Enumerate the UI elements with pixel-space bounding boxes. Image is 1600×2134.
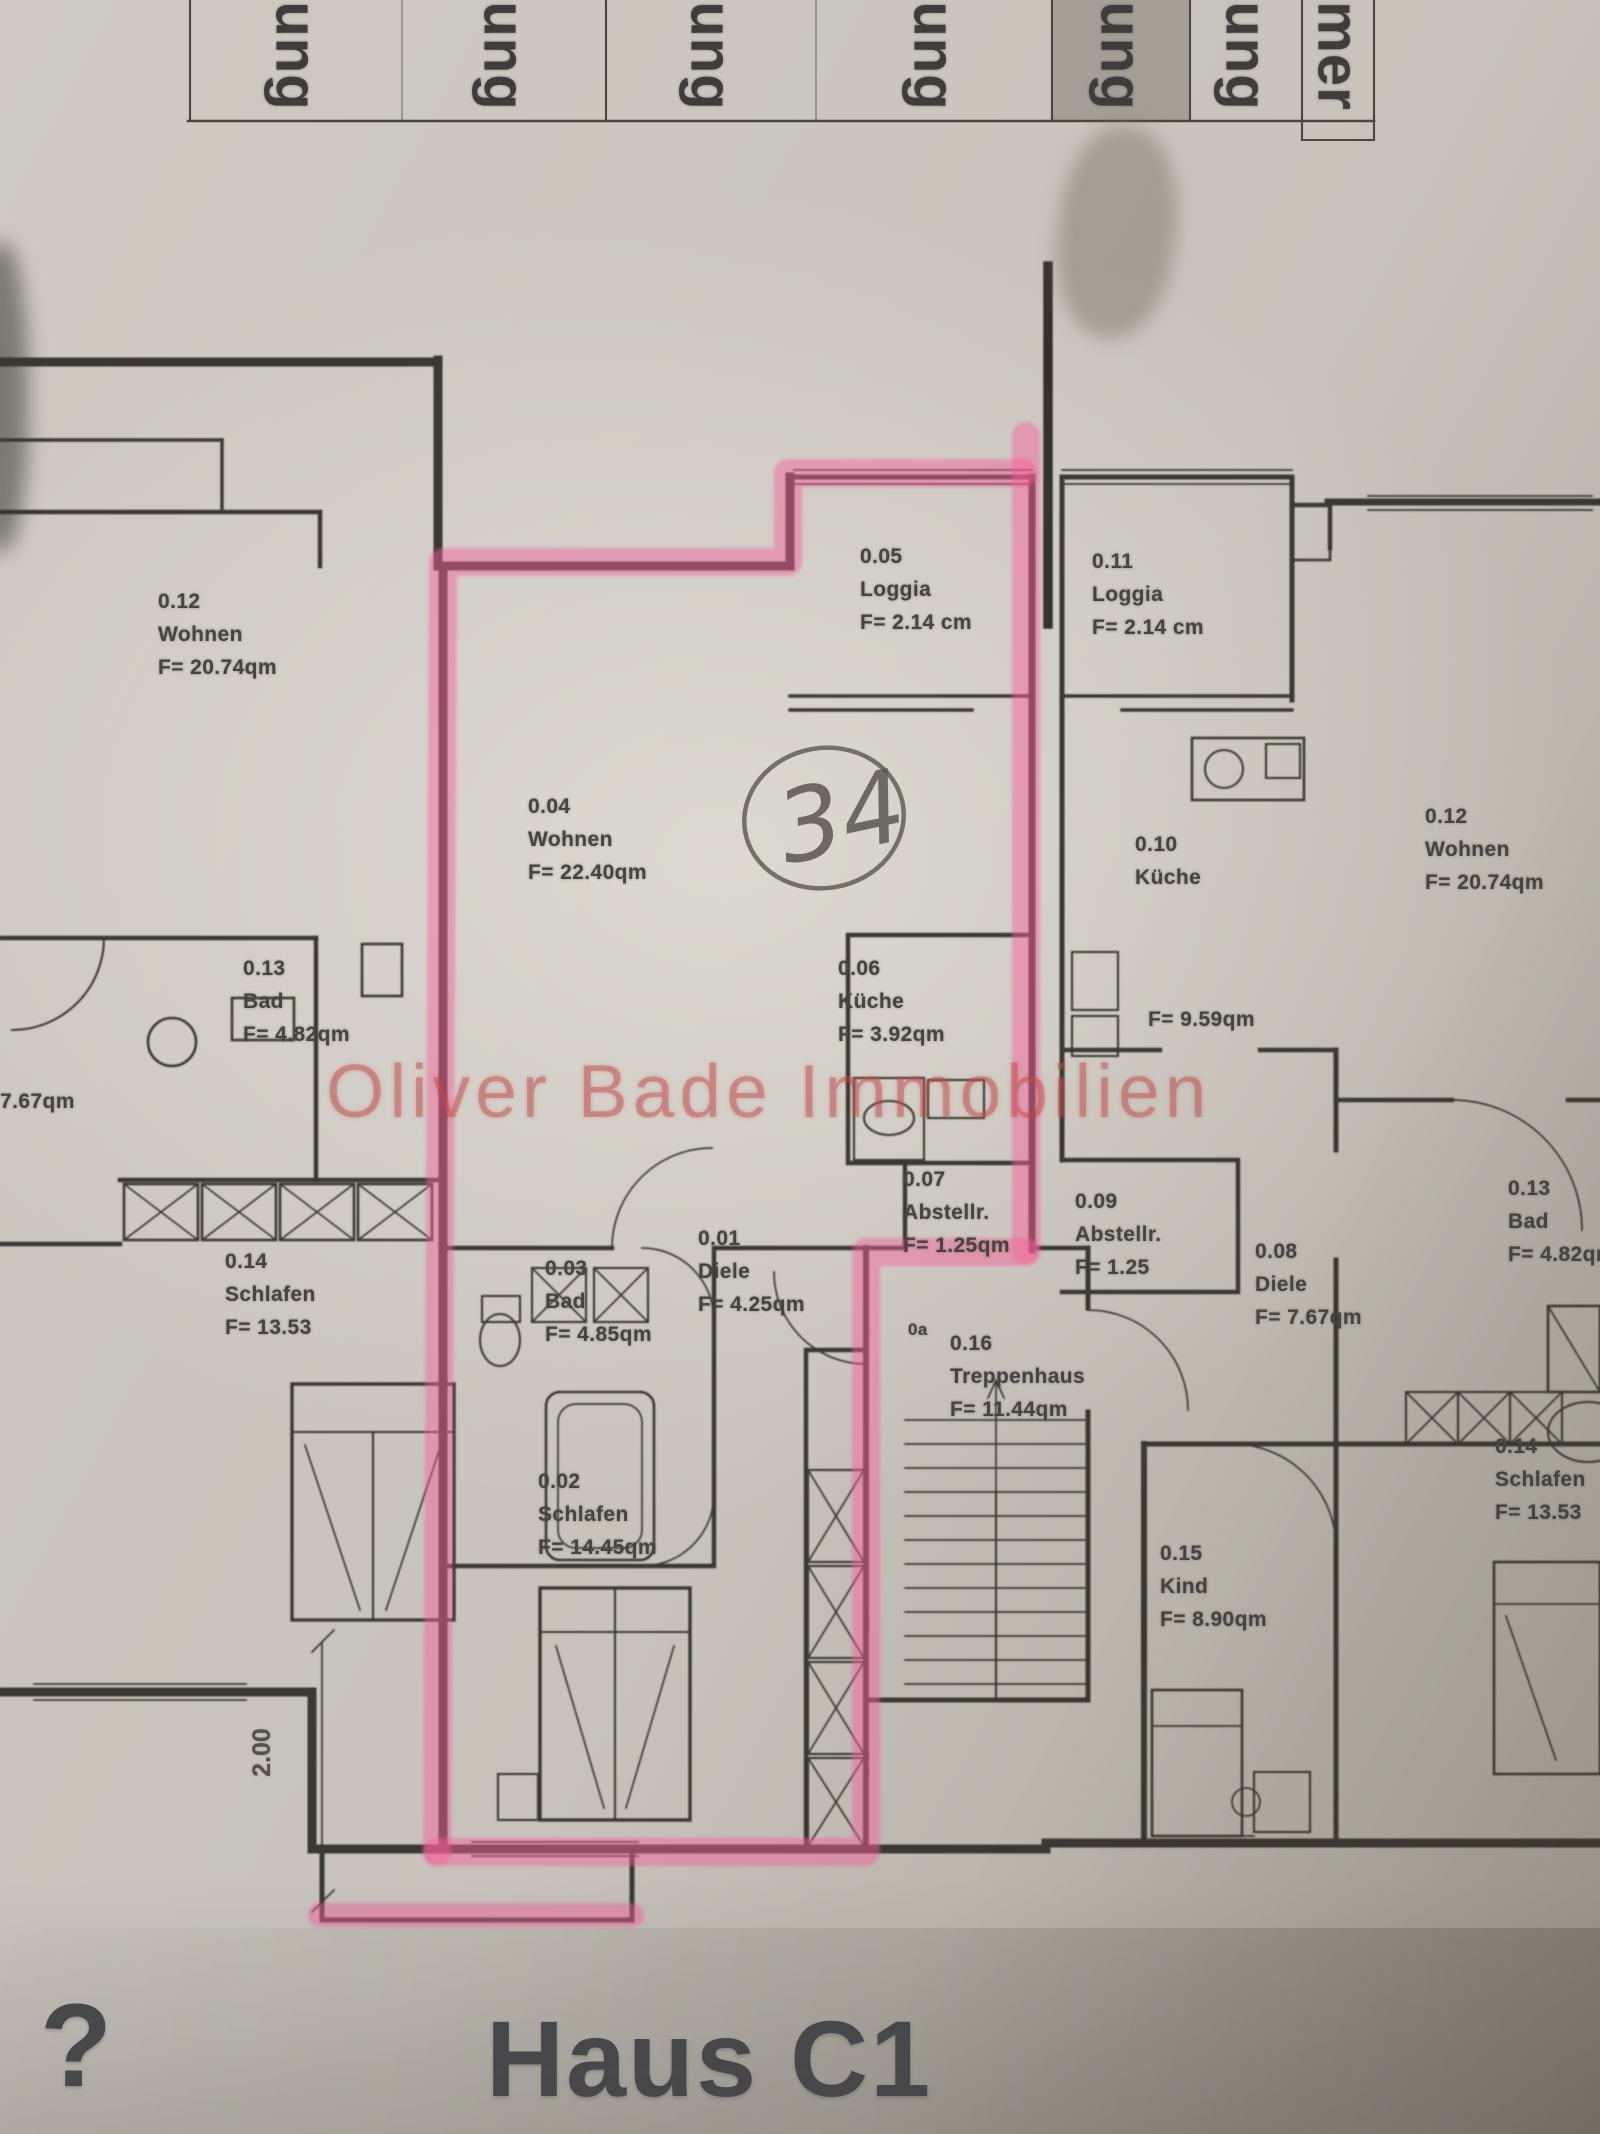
- room-name: Abstellr.: [903, 1196, 1010, 1229]
- room-label-0-08-diele: 0.08DieleF= 7.67qm: [1255, 1235, 1362, 1334]
- room-area: F= 2.14 cm: [860, 606, 972, 639]
- room-number: 0.14: [225, 1245, 316, 1278]
- room-number: 0.07: [903, 1163, 1010, 1196]
- room-area: F= 20.74qm: [158, 651, 277, 684]
- room-name: Kind: [1160, 1570, 1267, 1603]
- room-number: 0.15: [1160, 1537, 1267, 1570]
- room-label-0-03-bad: 0.03BadF= 4.85qm: [545, 1252, 652, 1351]
- room-name: Diele: [698, 1255, 805, 1288]
- room-name: Wohnen: [528, 823, 647, 856]
- room-number: 0.16: [950, 1327, 1085, 1360]
- room-number: 0.06: [838, 952, 945, 985]
- room-area: F= 4.82qm: [243, 1018, 350, 1051]
- room-name: Loggia: [1092, 578, 1204, 611]
- handwritten-annotation: 34: [733, 735, 916, 901]
- room-number: 0.08: [1255, 1235, 1362, 1268]
- room-label-0-13-bad: 0.13BadF= 4.82qm: [243, 952, 350, 1051]
- room-label-0-02-schlafen: 0.02SchlafenF= 14.45qm: [538, 1465, 657, 1564]
- corner-question-mark: ?: [40, 1978, 112, 2114]
- room-label-0-14-schlafen: 0.14SchlafenF= 13.53: [225, 1245, 316, 1344]
- room-name: Schlafen: [538, 1498, 657, 1531]
- room-number: 0.14: [1495, 1430, 1586, 1463]
- room-name: Bad: [1508, 1205, 1600, 1238]
- room-name: Bad: [243, 985, 350, 1018]
- room-number: 0.12: [158, 585, 277, 618]
- room-label-0-01-diele: 0.01DieleF= 4.25qm: [698, 1222, 805, 1321]
- room-area: F= 14.45qm: [538, 1531, 657, 1564]
- room-number: 0.13: [243, 952, 350, 985]
- room-area: F= 1.25: [1075, 1251, 1161, 1284]
- room-name: Wohnen: [1425, 833, 1544, 866]
- room-area: F= 13.53: [225, 1311, 316, 1344]
- handwritten-number: 34: [767, 747, 916, 888]
- room-area: F= 1.25qm: [903, 1229, 1010, 1262]
- room-area: F= 11.44qm: [950, 1393, 1085, 1426]
- room-number: 0.04: [528, 790, 647, 823]
- room-name: Treppenhaus: [950, 1360, 1085, 1393]
- room-area: F= 4.85qm: [545, 1318, 652, 1351]
- room-label-0-12-wohnen: 0.12WohnenF= 20.74qm: [1425, 800, 1544, 899]
- room-label-0-04-wohnen: 0.04WohnenF= 22.40qm: [528, 790, 647, 889]
- page-title: Haus C1: [486, 1996, 932, 2121]
- room-name: Bad: [545, 1285, 652, 1318]
- plan-text-0: F= 9.59qm: [1148, 1008, 1255, 1032]
- room-number: 0.05: [860, 540, 972, 573]
- room-name: Küche: [838, 985, 945, 1018]
- room-area: F= 13.53: [1495, 1496, 1586, 1529]
- room-number: 0.01: [698, 1222, 805, 1255]
- room-number: 0.12: [1425, 800, 1544, 833]
- room-name: Wohnen: [158, 618, 277, 651]
- room-number: 0.03: [545, 1252, 652, 1285]
- room-name: Schlafen: [225, 1278, 316, 1311]
- dimension-label: 2.00: [248, 1728, 277, 1777]
- room-number: 0.13: [1508, 1172, 1600, 1205]
- room-label-0-11-loggia: 0.11LoggiaF= 2.14 cm: [1092, 545, 1204, 644]
- plan-text-2: 0a: [908, 1320, 928, 1340]
- room-area: F= 7.67qm: [1255, 1301, 1362, 1334]
- room-label-0-14-schlafen: 0.14SchlafenF= 13.53: [1495, 1430, 1586, 1529]
- room-name: Küche: [1135, 861, 1201, 894]
- room-area: F= 4.82qm: [1508, 1238, 1600, 1271]
- room-label-0-06-küche: 0.06KücheF= 3.92qm: [838, 952, 945, 1051]
- watermark-text: Oliver Bade Immobilien: [326, 1048, 1211, 1134]
- room-number: 0.11: [1092, 545, 1204, 578]
- room-label-0-10-küche: 0.10Küche: [1135, 828, 1201, 894]
- room-label-0-12-wohnen: 0.12WohnenF= 20.74qm: [158, 585, 277, 684]
- room-label-0-07-abstellr.: 0.07Abstellr.F= 1.25qm: [903, 1163, 1010, 1262]
- table-rules: [188, 0, 1374, 140]
- room-label-0-09-abstellr.: 0.09Abstellr.F= 1.25: [1075, 1185, 1161, 1284]
- plan-text-1: 7.67qm: [0, 1090, 75, 1114]
- room-label-0-15-kind: 0.15KindF= 8.90qm: [1160, 1537, 1267, 1636]
- room-label-0-05-loggia: 0.05LoggiaF= 2.14 cm: [860, 540, 972, 639]
- room-name: Loggia: [860, 573, 972, 606]
- room-name: Diele: [1255, 1268, 1362, 1301]
- room-name: Schlafen: [1495, 1463, 1586, 1496]
- room-number: 0.02: [538, 1465, 657, 1498]
- room-label-0-13-bad: 0.13BadF= 4.82qm: [1508, 1172, 1600, 1271]
- room-label-0-16-treppenhaus: 0.16TreppenhausF= 11.44qm: [950, 1327, 1085, 1426]
- room-area: F= 20.74qm: [1425, 866, 1544, 899]
- room-number: 0.10: [1135, 828, 1201, 861]
- room-area: F= 8.90qm: [1160, 1603, 1267, 1636]
- floor-plan-photo: ungungungungungungmer: [0, 0, 1600, 2134]
- room-name: Abstellr.: [1075, 1218, 1161, 1251]
- room-area: F= 22.40qm: [528, 856, 647, 889]
- room-area: F= 3.92qm: [838, 1018, 945, 1051]
- room-area: F= 4.25qm: [698, 1288, 805, 1321]
- room-number: 0.09: [1075, 1185, 1161, 1218]
- room-area: F= 2.14 cm: [1092, 611, 1204, 644]
